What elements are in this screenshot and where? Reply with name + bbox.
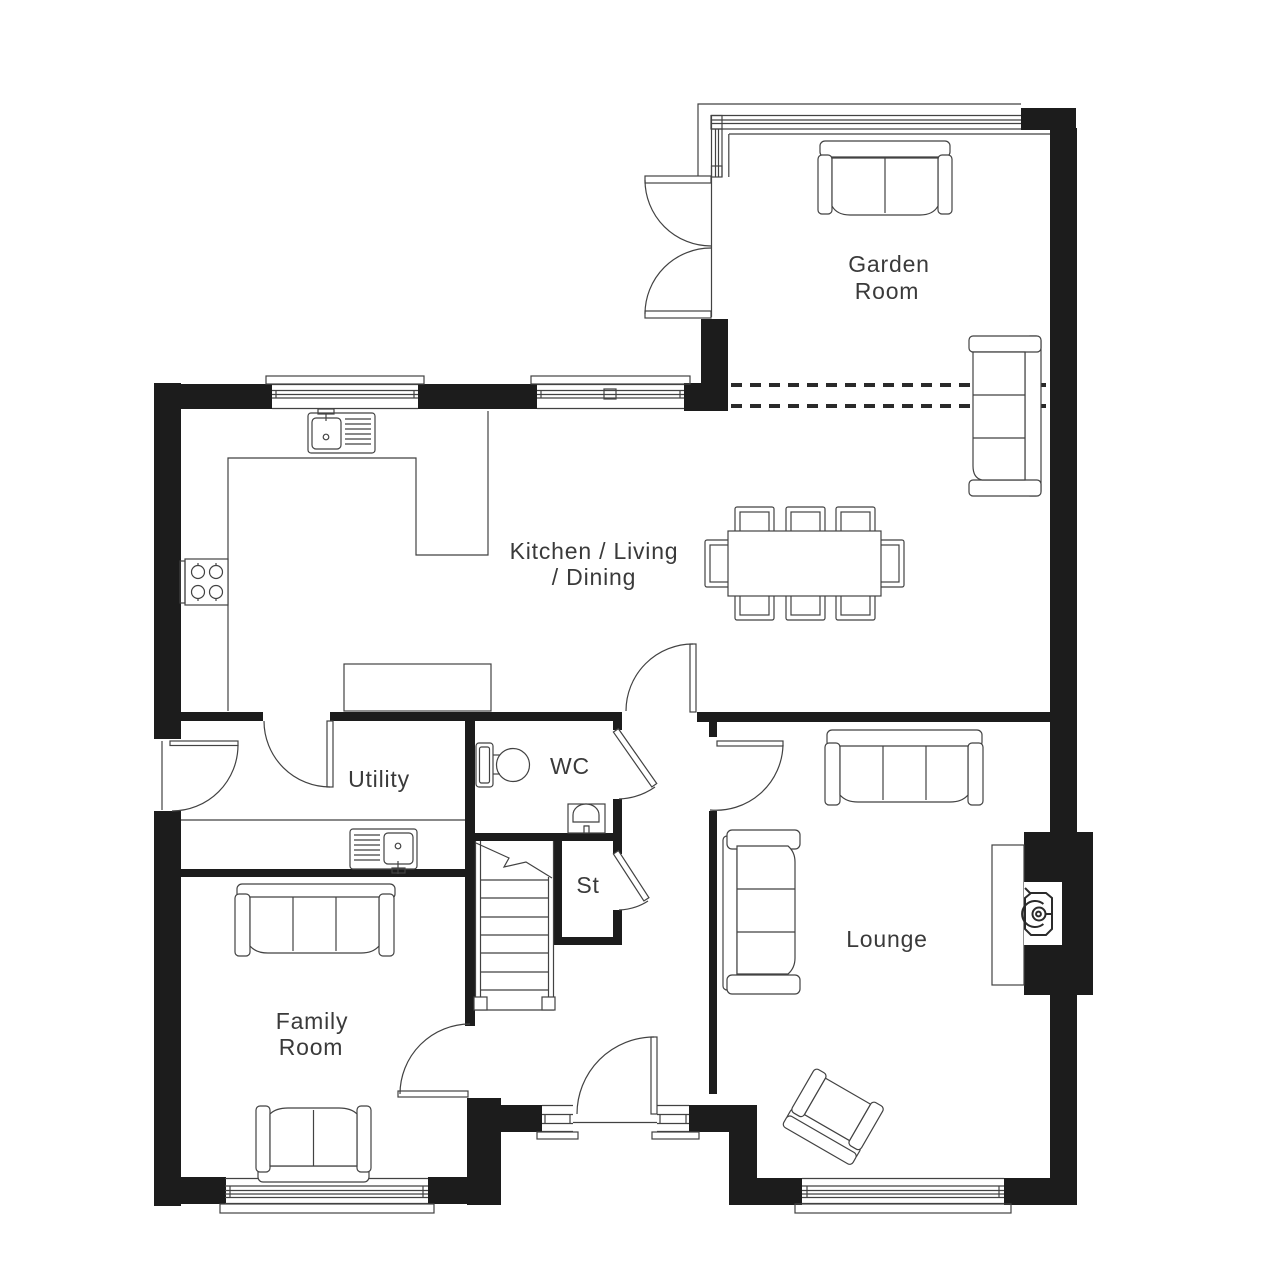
svg-text:/ Dining: / Dining <box>552 564 636 590</box>
svg-text:WC: WC <box>550 753 590 779</box>
svg-text:Utility: Utility <box>348 766 410 792</box>
svg-text:Room: Room <box>855 278 920 304</box>
svg-text:Family: Family <box>276 1008 349 1034</box>
svg-text:Lounge: Lounge <box>846 926 928 952</box>
svg-text:Room: Room <box>279 1034 344 1060</box>
svg-text:St: St <box>576 872 599 898</box>
svg-text:Kitchen / Living: Kitchen / Living <box>510 538 679 564</box>
svg-text:Garden: Garden <box>848 251 930 277</box>
